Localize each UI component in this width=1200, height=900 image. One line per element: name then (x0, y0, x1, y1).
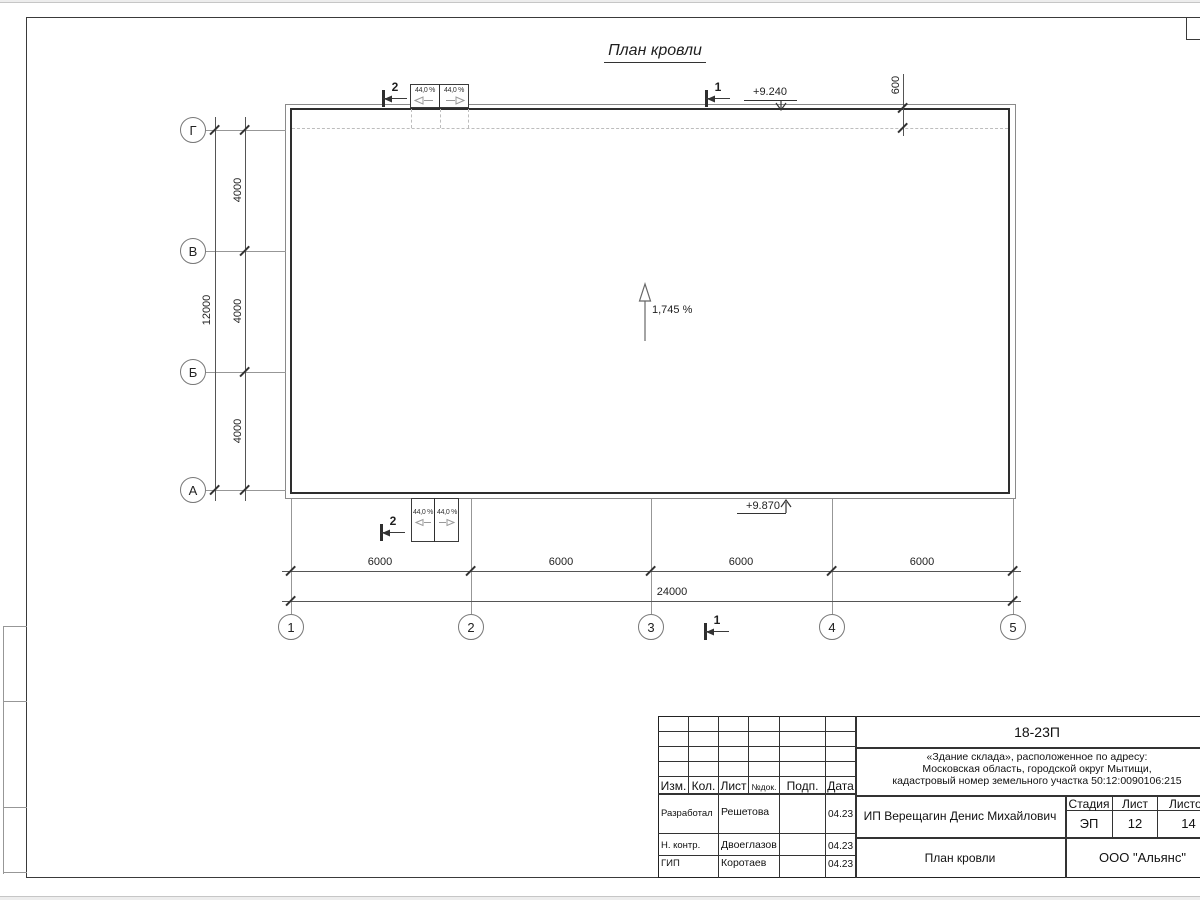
axis-bubble-row: В (180, 238, 206, 264)
axis-label: Б (189, 365, 198, 380)
tb-sheet-value: 12 (1113, 816, 1157, 831)
tb-role: Разработал (661, 808, 713, 819)
tb-col-header: №док. (749, 782, 779, 792)
elevation-label-bottom: +9.870 (739, 500, 787, 512)
tb-sheet-label: Лист (1113, 797, 1157, 811)
dimension-line (215, 117, 216, 501)
axis-line-v (206, 251, 286, 252)
dim-label: 4000 (232, 289, 244, 333)
corner-code-box (1186, 17, 1200, 40)
tb-name: Коротаев (721, 857, 766, 869)
side-stamp-line (3, 807, 27, 808)
dim-label: 4000 (232, 168, 244, 212)
axis-bubble-col: 1 (278, 614, 304, 640)
roof-slope-label: 1,745 % (652, 304, 704, 316)
sheet-top-edge (0, 2, 1200, 3)
canopy-divider (434, 498, 435, 542)
dim-label-total: 12000 (201, 284, 213, 336)
drawing-viewport: План кровли Г В Б А 1 2 3 4 5 4000 4000 … (0, 0, 1200, 900)
axis-line-b (206, 372, 286, 373)
axis-line-4 (832, 499, 833, 614)
dimension-line (282, 601, 1021, 602)
tb-object-line: «Здание склада», расположенное по адресу… (857, 751, 1200, 763)
dim-label: 6000 (719, 556, 763, 568)
tb-date: 04.23 (826, 841, 855, 852)
axis-label: В (189, 244, 198, 259)
hidden-canopy-edge (411, 109, 412, 128)
tb-col-header: Кол. (689, 779, 718, 793)
canopy-slope-label: 44,0 % (435, 509, 459, 516)
dimension-line (282, 571, 1021, 572)
axis-bubble-col: 3 (638, 614, 664, 640)
section-mark-label: 1 (711, 80, 725, 94)
side-stamp-line (3, 872, 27, 873)
axis-label: 4 (828, 620, 835, 635)
tb-stage-label: Стадия (1066, 797, 1112, 811)
hidden-canopy-edge (440, 109, 441, 128)
section-mark-line (705, 631, 729, 632)
dim-label: 6000 (358, 556, 402, 568)
tb-line (658, 746, 855, 747)
axis-label: 3 (647, 620, 654, 635)
tb-stage-value: ЭП (1066, 816, 1112, 831)
dim-label: 6000 (900, 556, 944, 568)
tb-col-header: Подп. (780, 779, 825, 793)
axis-bubble-row: Г (180, 117, 206, 143)
axis-line-g (206, 130, 286, 131)
section-mark-label: 1 (710, 613, 724, 627)
tb-company: ООО "Альянс" (1066, 850, 1200, 865)
dimension-line (245, 117, 246, 501)
axis-label: А (189, 483, 198, 498)
tb-sheets-label: Листов (1158, 797, 1200, 811)
side-stamp-line (3, 626, 4, 874)
section-mark-label: 2 (388, 80, 402, 94)
side-stamp-line (3, 626, 27, 627)
tb-line (658, 855, 855, 856)
tb-col-header: Изм. (659, 779, 688, 793)
dim-label: 6000 (539, 556, 583, 568)
tb-line (855, 837, 1200, 839)
tb-col-header: Лист (719, 779, 748, 793)
canopy-slope-label: 44,0 % (411, 509, 435, 516)
tb-role: Н. контр. (661, 840, 700, 851)
tb-line (658, 833, 855, 834)
tb-role: ГИП (661, 858, 680, 869)
tb-col-header: Дата (826, 779, 855, 793)
tb-line (855, 747, 1200, 749)
axis-line-a (206, 490, 286, 491)
section-mark-line (383, 98, 407, 99)
section-mark-label: 2 (386, 514, 400, 528)
axis-line-2 (471, 499, 472, 614)
elevation-underline (744, 100, 797, 101)
tb-line (718, 716, 719, 878)
axis-bubble-col: 2 (458, 614, 484, 640)
roof-outline-parapet (290, 108, 1010, 494)
axis-bubble-row: Б (180, 359, 206, 385)
dim-label: 4000 (232, 409, 244, 453)
tb-line (658, 793, 855, 795)
tb-object-line: кадастровый номер земельного участка 50:… (857, 775, 1200, 787)
tb-line (658, 761, 855, 762)
tb-doc-number: 18-23П (857, 724, 1200, 740)
axis-bubble-col: 4 (819, 614, 845, 640)
side-stamp-line (3, 701, 27, 702)
tb-name: Двоеглазов (721, 839, 777, 851)
tb-name: Решетова (721, 806, 769, 818)
axis-label: 1 (287, 620, 294, 635)
hidden-canopy-edge (468, 109, 469, 128)
section-mark-line (381, 532, 405, 533)
sheet-bottom-edge (0, 896, 1200, 897)
section-mark-line (706, 98, 730, 99)
tb-date: 04.23 (826, 809, 855, 820)
elevation-underline (737, 513, 786, 514)
tb-line (658, 776, 855, 777)
axis-bubble-col: 5 (1000, 614, 1026, 640)
dim-label-total: 24000 (646, 586, 698, 598)
tb-date: 04.23 (826, 859, 855, 870)
tb-line (779, 716, 780, 878)
tb-line (825, 716, 826, 878)
tb-sheet-title: План кровли (857, 851, 1063, 865)
page-title: План кровли (555, 42, 755, 63)
axis-label: 2 (467, 620, 474, 635)
tb-sheets-value: 14 (1158, 816, 1200, 831)
tb-object-line: Московская область, городской округ Мыти… (857, 763, 1200, 775)
canopy-slope-label: 44,0 % (411, 87, 439, 94)
axis-bubble-row: А (180, 477, 206, 503)
tb-line (658, 731, 855, 732)
axis-label: Г (189, 123, 196, 138)
elevation-label-top: +9.240 (744, 86, 796, 98)
dim-label-overhang: 600 (890, 67, 902, 103)
axis-label: 5 (1009, 620, 1016, 635)
tb-client: ИП Верещагин Денис Михайлович (857, 809, 1063, 823)
canopy-slope-label: 44,0 % (440, 87, 468, 94)
